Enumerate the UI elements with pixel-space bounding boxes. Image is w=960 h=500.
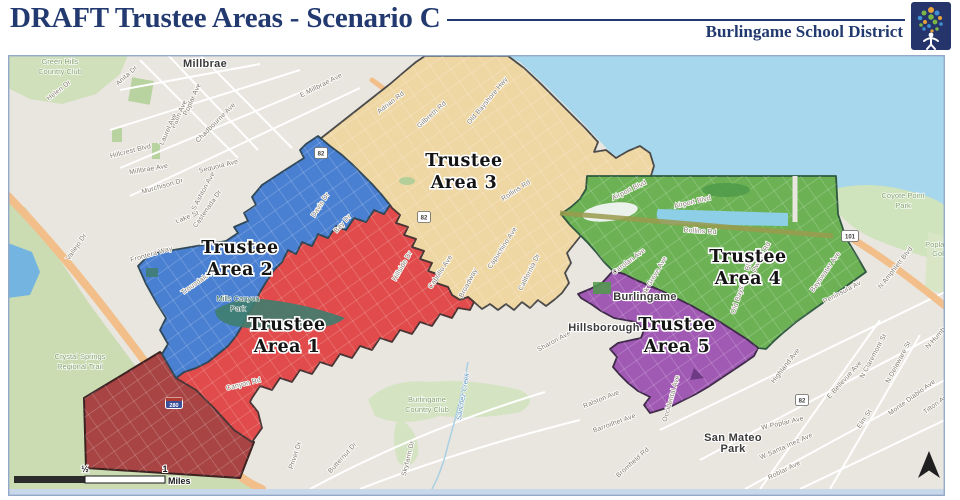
trustee-area-3-label: Area 3 bbox=[430, 173, 498, 193]
shield-number: 101 bbox=[845, 234, 856, 240]
trustee-area-1-label: Trustee bbox=[248, 315, 325, 335]
park-label: Green Hills bbox=[41, 57, 78, 66]
trustee-area-4-label: Trustee bbox=[709, 247, 786, 267]
scale-bar-white-segment bbox=[85, 476, 165, 483]
scale-one-label: 1 bbox=[162, 464, 167, 474]
trustee-area-1-label: Area 1 bbox=[253, 337, 321, 357]
city-label: Burlingame bbox=[613, 291, 677, 303]
highway-shield-82: 82 bbox=[418, 212, 431, 223]
trustee-area-4-label: Area 4 bbox=[714, 269, 782, 289]
park-patch-green-area bbox=[593, 282, 611, 294]
page-title: DRAFT Trustee Areas - Scenario C bbox=[10, 2, 440, 35]
district-name: Burlingame School District bbox=[706, 22, 903, 42]
shield-red-band bbox=[166, 398, 183, 402]
scale-unit-label: Miles bbox=[168, 476, 191, 486]
park-label: Coyote Point bbox=[882, 191, 926, 200]
highway-shield-82: 82 bbox=[796, 395, 809, 406]
trustee-area-2-label: Trustee bbox=[201, 238, 278, 258]
highway-shield-82: 82 bbox=[315, 148, 328, 159]
park-label: Country Club bbox=[405, 405, 449, 414]
shield-number: 82 bbox=[799, 398, 806, 404]
park-label: Park bbox=[895, 201, 911, 210]
header-rule bbox=[447, 19, 905, 21]
highway-shield-280: 280 bbox=[166, 398, 183, 410]
highway-shield-101: 101 bbox=[842, 231, 859, 242]
city-label: Millbrae bbox=[183, 58, 227, 70]
city-label: Park bbox=[720, 443, 746, 455]
scale-bar-black-segment bbox=[14, 476, 85, 483]
scale-bar bbox=[14, 476, 165, 483]
park-label: Park bbox=[230, 304, 246, 313]
trustee-area-3-label: Trustee bbox=[425, 151, 502, 171]
shield-number: 82 bbox=[318, 151, 325, 157]
trustee-area-2-label: Area 2 bbox=[206, 260, 274, 280]
trustee-area-5-label: Trustee bbox=[638, 315, 715, 335]
shield-number: 280 bbox=[169, 403, 178, 409]
shield-number: 82 bbox=[421, 215, 428, 221]
park-label: Regional Trail bbox=[57, 362, 103, 371]
park-patch bbox=[112, 128, 122, 142]
park-label: Mills Canyon bbox=[217, 294, 260, 303]
trustee-area-5-label: Area 5 bbox=[643, 337, 711, 357]
park-patch-tan-area bbox=[399, 177, 415, 185]
park-patch-blue-area bbox=[146, 268, 158, 277]
city-label: Hillsborough bbox=[568, 322, 639, 334]
page: DRAFT Trustee Areas - Scenario C Burling… bbox=[0, 0, 960, 500]
park-label: Crystal Springs bbox=[55, 352, 106, 361]
park-patch bbox=[128, 77, 154, 104]
park-label: Golf bbox=[932, 249, 945, 258]
map-svg: Helen DrAnita DrPoplar AvePalm AveLaurel… bbox=[8, 55, 945, 496]
park-label: Country Club bbox=[38, 67, 82, 76]
park-label: Burlingame bbox=[408, 395, 446, 404]
park-label: Poplar bbox=[925, 240, 945, 249]
district-logo-icon bbox=[910, 1, 952, 51]
scale-half-label: ½ bbox=[81, 464, 89, 474]
map: Helen DrAnita DrPoplar AvePalm AveLaurel… bbox=[8, 55, 945, 496]
